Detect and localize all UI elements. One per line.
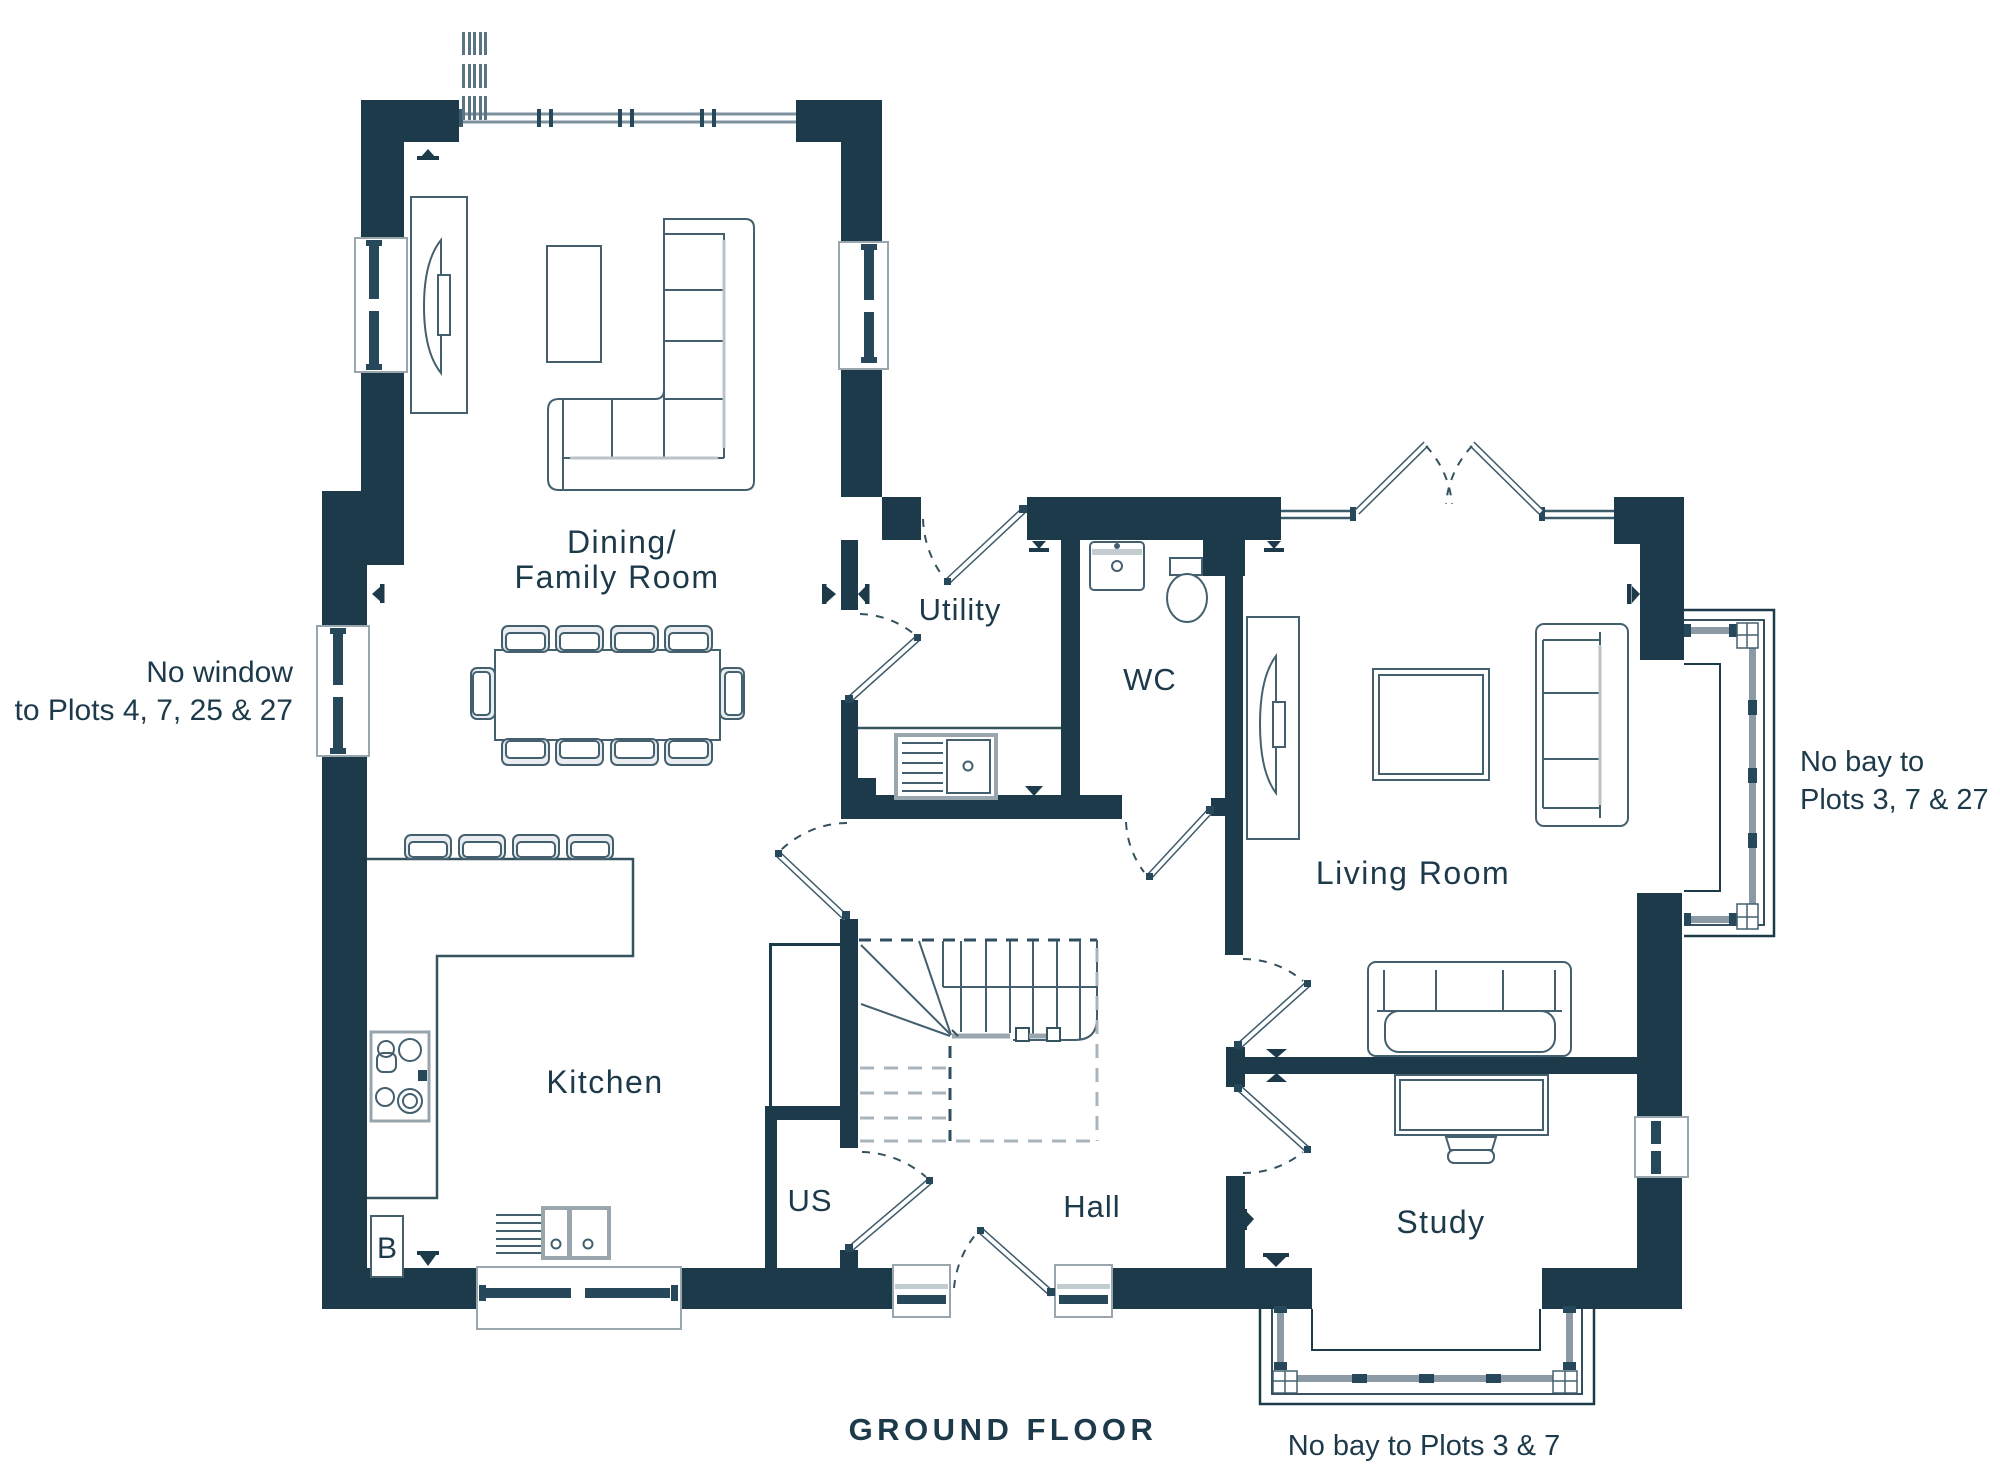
svg-text:Study: Study	[1396, 1204, 1485, 1240]
svg-text:Family Room: Family Room	[515, 559, 720, 595]
svg-text:No bay to Plots 3 & 7: No bay to Plots 3 & 7	[1288, 1430, 1560, 1462]
svg-text:Utility: Utility	[919, 592, 1002, 627]
svg-text:Living Room: Living Room	[1316, 855, 1510, 891]
svg-text:No window: No window	[146, 656, 293, 689]
svg-text:Hall: Hall	[1063, 1189, 1120, 1224]
svg-text:Plots 3, 7 & 27: Plots 3, 7 & 27	[1800, 784, 1989, 816]
svg-text:US: US	[787, 1183, 832, 1218]
svg-text:WC: WC	[1123, 662, 1177, 697]
svg-text:No bay to: No bay to	[1800, 746, 1924, 778]
svg-text:Kitchen: Kitchen	[546, 1064, 663, 1100]
svg-text:Dining/: Dining/	[567, 524, 677, 560]
svg-text:GROUND FLOOR: GROUND FLOOR	[849, 1412, 1158, 1447]
svg-text:B: B	[377, 1232, 397, 1265]
svg-text:to Plots 4, 7, 25 & 27: to Plots 4, 7, 25 & 27	[14, 694, 293, 727]
